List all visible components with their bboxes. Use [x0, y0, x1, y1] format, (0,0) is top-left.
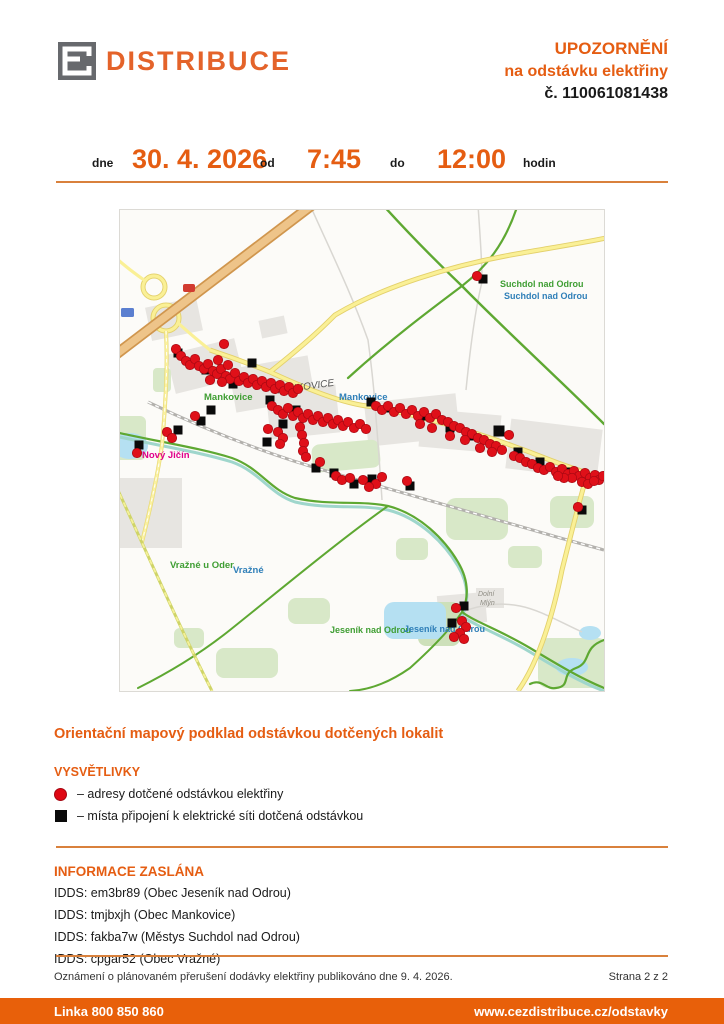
map-canvas: Suchdol nad OdrouSuchdol nad OdrouMankov… — [120, 210, 604, 691]
affected-address-marker — [377, 472, 386, 481]
to-time: 12:00 — [437, 144, 506, 175]
highway-shield — [121, 308, 134, 317]
map-label: Mankovice — [339, 392, 388, 403]
legend-item-addresses: – adresy dotčené odstávkou elektřiny — [54, 786, 283, 802]
highway-exit-marker — [183, 284, 195, 292]
map-label: Suchdol nad Odrou — [500, 279, 584, 289]
affected-address-marker — [475, 443, 484, 452]
map-label: Dolní — [478, 591, 495, 598]
legend-item-label: – adresy dotčené odstávkou elektřiny — [77, 787, 283, 801]
affected-address-marker — [293, 384, 302, 393]
affected-address-marker — [459, 634, 468, 643]
connection-point-marker — [279, 420, 288, 429]
affected-address-marker — [205, 375, 214, 384]
legend-title: VYSVĚTLIVKY — [54, 765, 140, 779]
footer-bar: Linka 800 850 860 www.cezdistribuce.cz/o… — [0, 998, 724, 1024]
outage-map: Suchdol nad OdrouSuchdol nad OdrouMankov… — [119, 209, 605, 692]
affected-address-marker — [315, 457, 324, 466]
affected-address-marker — [132, 448, 141, 457]
brand-wordmark: DISTRIBUCE — [106, 46, 291, 77]
affected-address-marker — [415, 419, 424, 428]
map-label: Vražné — [233, 565, 264, 576]
page-number: Strana 2 z 2 — [609, 971, 668, 983]
do-label: do — [390, 156, 405, 170]
connection-point-marker — [174, 426, 183, 435]
affected-address-marker — [213, 355, 222, 364]
affected-address-marker — [345, 473, 354, 482]
connection-point-marker — [207, 406, 216, 415]
footer-divider — [56, 955, 668, 957]
affected-address-marker — [223, 360, 232, 369]
affected-address-marker — [451, 603, 460, 612]
schedule-divider — [56, 181, 668, 183]
from-time: 7:45 — [307, 144, 361, 175]
affected-address-marker — [472, 271, 481, 280]
affected-address-marker — [497, 445, 506, 454]
map-label: Nový Jičín — [142, 450, 190, 461]
map-label: Suchdol nad Odrou — [504, 291, 588, 301]
map-label: Vražné u Oder — [170, 560, 234, 571]
idds-line: IDDS: em3br89 (Obec Jeseník nad Odrou) — [54, 886, 291, 900]
affected-address-marker — [217, 377, 226, 386]
info-title: INFORMACE ZASLÁNA — [54, 864, 204, 879]
affected-address-marker — [402, 476, 411, 485]
affected-address-marker — [301, 452, 310, 461]
map-label: Jeseník nad Odrou — [404, 624, 485, 634]
map-label: Mankovice — [204, 392, 253, 403]
section-divider — [56, 846, 668, 848]
map-caption: Orientační mapový podklad odstávkou dotč… — [54, 726, 443, 742]
notice-subtitle: na odstávku elektřiny — [504, 61, 668, 83]
affected-address-marker — [504, 430, 513, 439]
phone-line: Linka 800 850 860 — [54, 1004, 164, 1019]
affected-address-marker — [427, 423, 436, 432]
legend-item-connections: – místa připojení k elektrické síti dotč… — [54, 808, 363, 824]
notice-number: č. 110061081438 — [504, 83, 668, 105]
od-label: od — [260, 156, 275, 170]
affected-address-marker — [364, 482, 373, 491]
idds-line: IDDS: fakba7w (Městys Suchdol nad Odrou) — [54, 930, 300, 944]
affected-address-marker — [460, 435, 469, 444]
affected-address-marker — [167, 433, 176, 442]
website-link[interactable]: www.cezdistribuce.cz/odstavky — [474, 1004, 668, 1019]
dne-label: dne — [92, 156, 113, 170]
affected-address-marker — [553, 471, 562, 480]
hodin-label: hodin — [523, 156, 556, 170]
connection-point-marker — [248, 359, 257, 368]
notice-title: UPOZORNĚNÍ — [504, 38, 668, 61]
legend-item-label: – místa připojení k elektrické síti dotč… — [77, 809, 363, 823]
affected-address-marker — [487, 447, 496, 456]
affected-address-marker — [275, 439, 284, 448]
affected-address-marker — [589, 476, 598, 485]
connection-point-marker — [263, 438, 272, 447]
affected-address-marker — [263, 424, 272, 433]
outage-date: 30. 4. 2026 — [132, 144, 267, 175]
red-circle-icon — [54, 788, 67, 801]
connection-point-marker — [494, 426, 505, 437]
cez-logo — [58, 42, 96, 80]
notice-header: UPOZORNĚNÍ na odstávku elektřiny č. 1100… — [504, 38, 668, 104]
affected-address-marker — [219, 339, 228, 348]
map-label: Mlýn — [480, 600, 495, 607]
publication-note: Oznámení o plánovaném přerušení dodávky … — [54, 971, 453, 983]
affected-address-marker — [449, 632, 458, 641]
affected-address-marker — [361, 424, 370, 433]
black-square-icon — [55, 810, 67, 822]
idds-line: IDDS: tmjbxjh (Obec Mankovice) — [54, 908, 235, 922]
affected-address-marker — [190, 411, 199, 420]
connection-point-marker — [448, 619, 457, 628]
affected-address-marker — [573, 502, 582, 511]
map-label: Jeseník nad Odrou — [330, 625, 411, 635]
affected-address-marker — [445, 431, 454, 440]
